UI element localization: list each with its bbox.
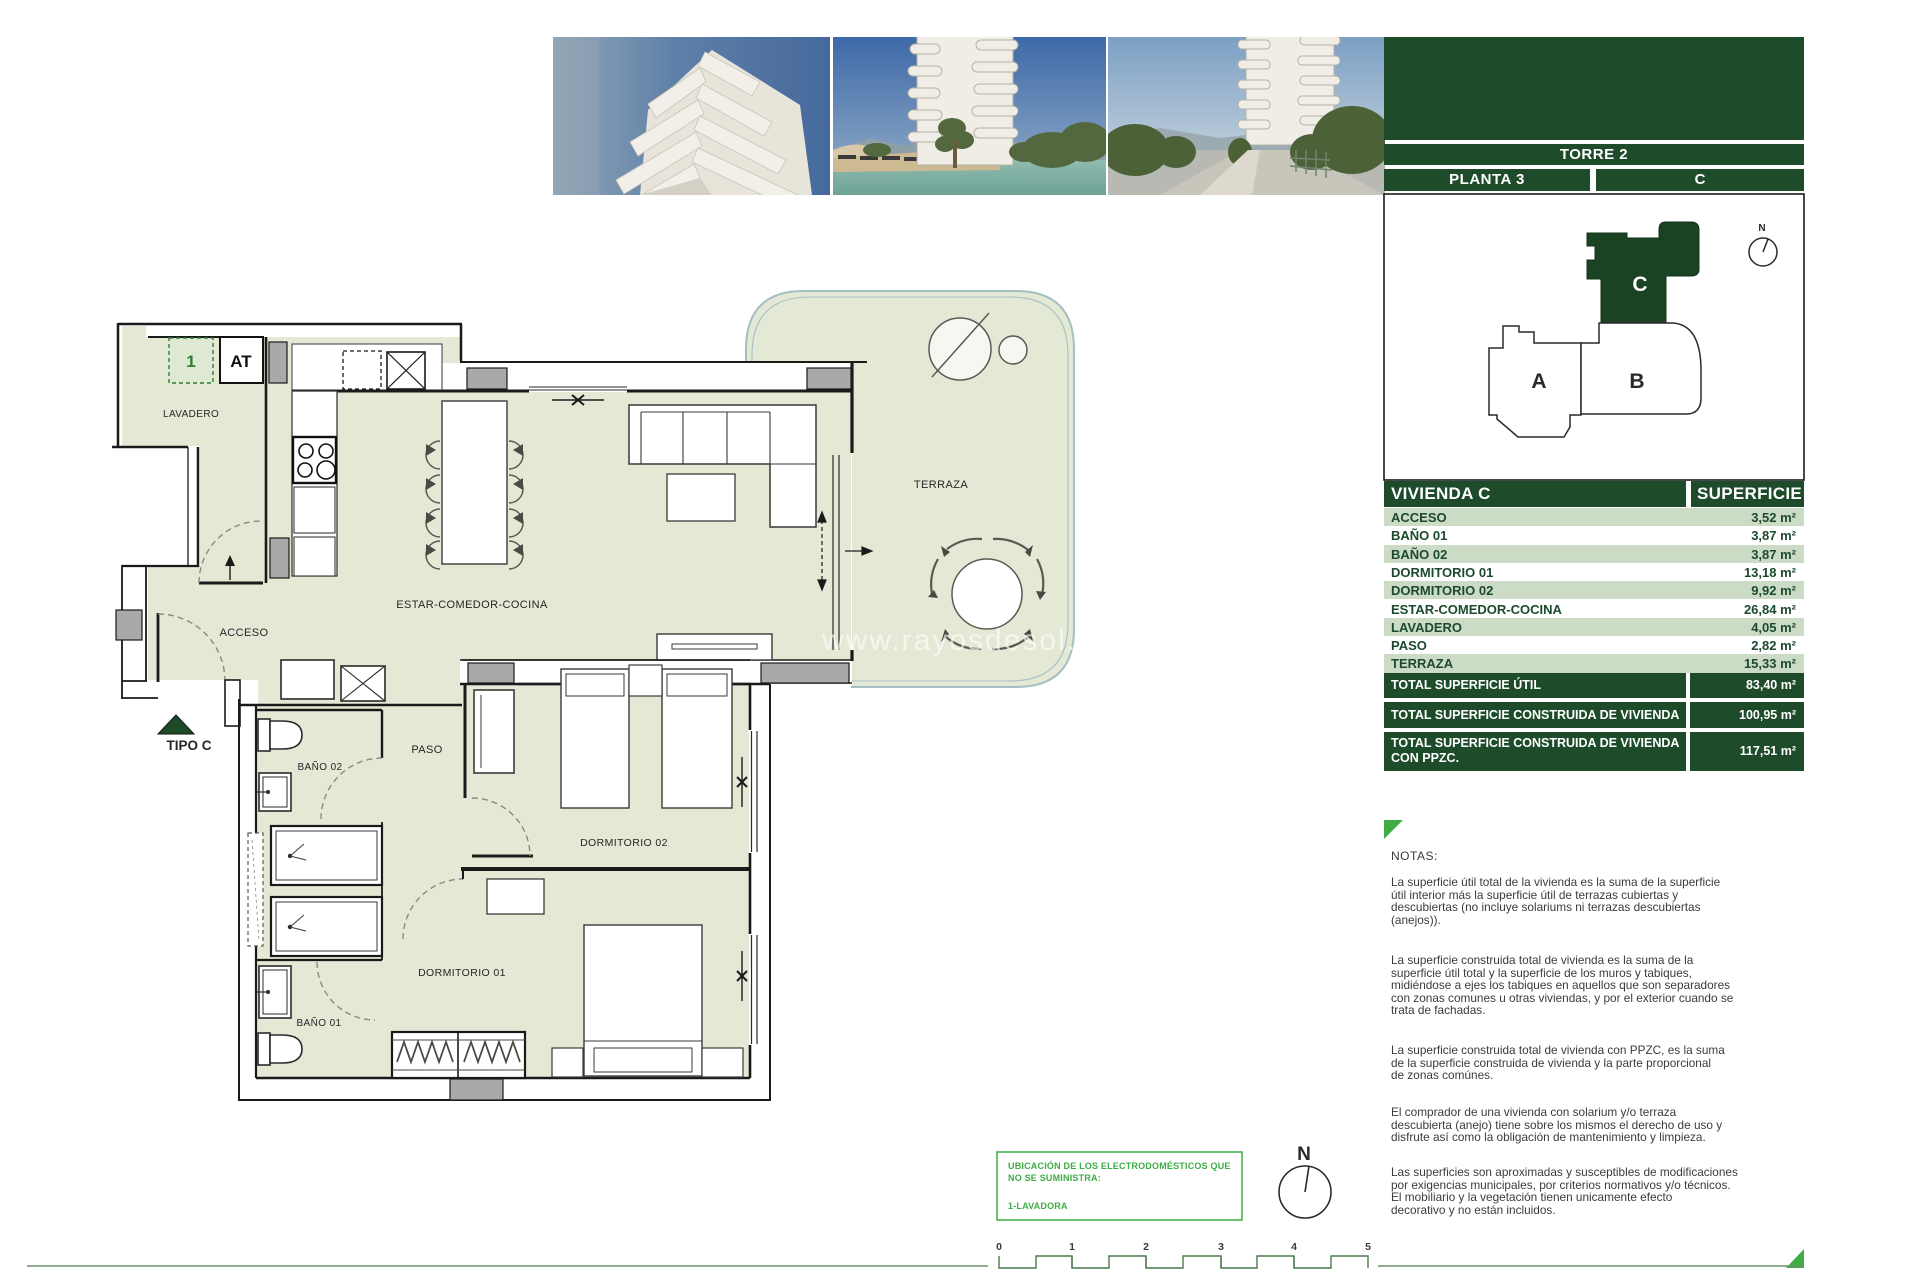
svg-text:1: 1 xyxy=(186,352,195,371)
svg-text:C: C xyxy=(1632,273,1647,296)
svg-text:BAÑO 02: BAÑO 02 xyxy=(297,760,342,773)
svg-text:TERRAZA: TERRAZA xyxy=(914,479,968,491)
svg-text:PASO: PASO xyxy=(411,744,442,756)
svg-text:N: N xyxy=(1297,1144,1311,1165)
svg-text:0: 0 xyxy=(996,1241,1002,1253)
svg-text:www.rayosdesol.co: www.rayosdesol.co xyxy=(821,624,1113,657)
svg-text:3: 3 xyxy=(1218,1241,1224,1253)
svg-text:2: 2 xyxy=(1143,1241,1149,1253)
svg-text:ESTAR-COMEDOR-COCINA: ESTAR-COMEDOR-COCINA xyxy=(396,599,548,611)
svg-text:1: 1 xyxy=(1069,1241,1075,1253)
svg-text:DORMITORIO 01: DORMITORIO 01 xyxy=(418,967,506,979)
svg-text:N: N xyxy=(1758,223,1765,234)
svg-text:4: 4 xyxy=(1291,1241,1297,1253)
svg-text:LAVADERO: LAVADERO xyxy=(163,409,219,420)
svg-text:5: 5 xyxy=(1365,1241,1371,1253)
svg-text:BAÑO 01: BAÑO 01 xyxy=(296,1016,341,1029)
svg-text:A: A xyxy=(1531,370,1546,393)
svg-text:ACCESO: ACCESO xyxy=(220,627,269,639)
svg-text:B: B xyxy=(1629,370,1644,393)
svg-text:TIPO C: TIPO C xyxy=(166,738,211,753)
svg-text:DORMITORIO 02: DORMITORIO 02 xyxy=(580,837,668,849)
svg-text:AT: AT xyxy=(230,352,252,371)
